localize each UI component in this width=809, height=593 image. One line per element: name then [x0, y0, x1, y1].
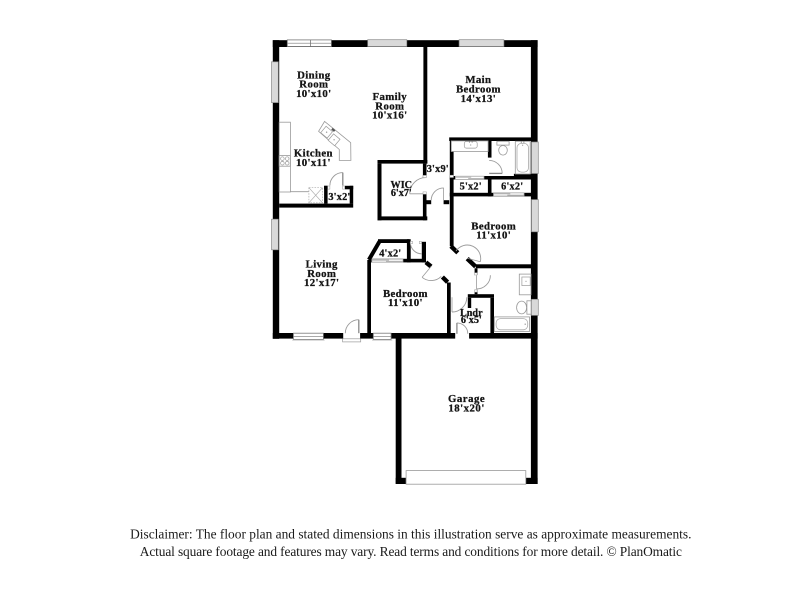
svg-text:11'x10': 11'x10' — [388, 297, 423, 309]
svg-text:6'x2': 6'x2' — [501, 181, 523, 192]
svg-text:10'x11': 10'x11' — [296, 157, 331, 169]
svg-text:6'x7': 6'x7' — [391, 188, 412, 199]
svg-text:6'x5': 6'x5' — [461, 315, 482, 326]
svg-text:Disclaimer: The floor plan and: Disclaimer: The floor plan and stated di… — [130, 527, 691, 542]
svg-text:Actual square footage and feat: Actual square footage and features may v… — [140, 544, 682, 559]
svg-text:11'x10': 11'x10' — [476, 230, 511, 242]
svg-text:3'x9': 3'x9' — [427, 164, 449, 175]
svg-text:12'x17': 12'x17' — [304, 277, 339, 289]
svg-text:18'x20': 18'x20' — [448, 403, 485, 415]
svg-text:14'x13': 14'x13' — [461, 93, 496, 105]
svg-text:3'x2': 3'x2' — [328, 192, 350, 203]
svg-text:10'x16': 10'x16' — [372, 110, 407, 122]
svg-text:5'x2': 5'x2' — [460, 181, 482, 192]
svg-text:10'x10': 10'x10' — [296, 88, 331, 100]
svg-text:4'x2': 4'x2' — [379, 248, 401, 259]
